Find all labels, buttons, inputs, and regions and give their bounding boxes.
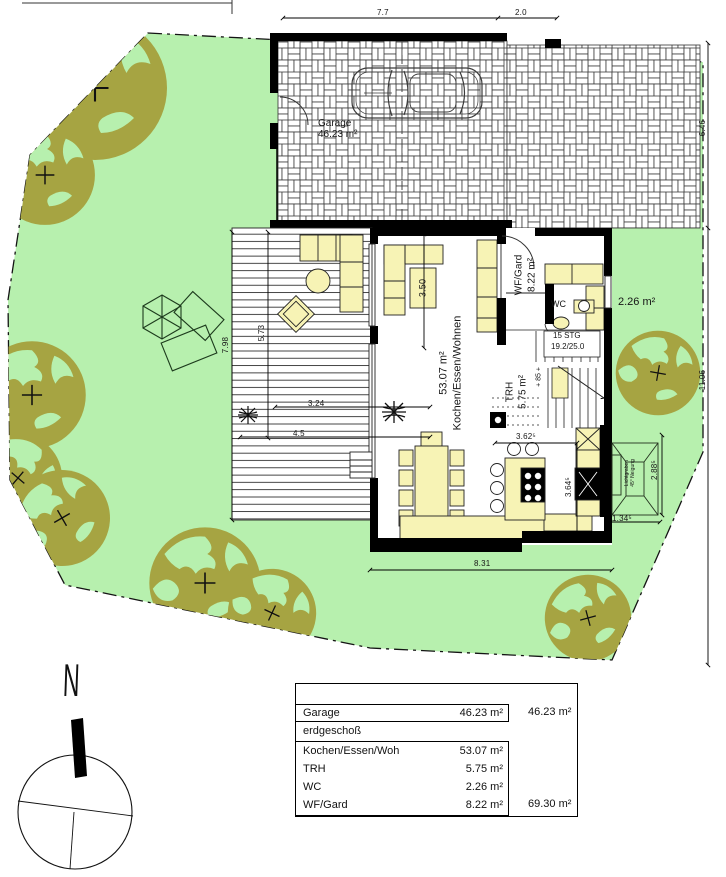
area-table: Garage 46.23 m² 46.23 m² erdgeschoß Koch… [295,683,578,817]
table-row: Kochen/Essen/Woh 53.07 m² [296,743,508,761]
row-label: WC [303,781,321,793]
dim-right-lower: 11.06 [698,370,708,390]
row-value: 53.07 m² [460,745,503,757]
house [350,228,612,552]
sink [579,301,590,312]
sideboard [477,240,497,332]
dim-terrace-height: 7.98 [221,337,231,353]
garage-row-value: 46.23 m² [460,707,503,719]
site-plan: Garage 46.23 m² 53.07 m² Kochen/Essen/Wo… [0,0,726,877]
stairs-count: 15 STG [553,331,581,341]
garage-total: 46.23 m² [528,706,571,718]
toilet [553,317,569,329]
floor-total: 69.30 m² [528,798,571,810]
dim-kitchen-height: 3.64⁵ [564,477,574,497]
compass [18,718,133,869]
kitchen-column [575,428,601,516]
trh-area: 5.75 m² [517,375,530,409]
dim-terrace-w2: 4.5 [293,429,305,439]
room-label-living: 53.07 m² Kochen/Essen/Wohnen [437,316,465,431]
row-value: 5.75 m² [466,763,503,775]
tree-icon [23,16,167,160]
gate-post [545,39,561,48]
trh-name: TRH [505,375,518,409]
row-label: WF/Gard [303,799,348,811]
dim-garage-width: 7.7 [377,8,389,18]
wc-area-label: 2.26 m² [618,296,655,310]
garage-area: 46.23 m² [318,129,357,142]
room-label-wf-gard: WF/Gard 8.22 m² [514,255,539,296]
dim-terrace-inner: 5.73 [257,325,267,341]
stove [521,468,545,502]
compass-needle [71,718,87,778]
row-value: 8.22 m² [466,799,503,811]
wf-area: 8.22 m² [526,255,539,296]
light-well-label: Lichtgraben 45° Neigung [624,459,637,487]
dim-canopy-height: 2.88⁵ [650,460,660,480]
row-value: 2.26 m² [466,781,503,793]
terrace-table [306,269,330,293]
table-row: WF/Gard 8.22 m² [296,797,508,815]
table-floor-rows: Kochen/Essen/Woh 53.07 m² TRH 5.75 m² WC… [295,741,509,816]
table-row: TRH 5.75 m² [296,761,508,779]
plant-icon [382,401,406,423]
row-label: TRH [303,763,326,775]
dim-gate-width: 2.0 [515,8,527,18]
compass-north-label: N [62,652,81,710]
row-label: Kochen/Essen/Woh [303,745,399,757]
dim-kitchen-width: 3.62⁵ [516,432,536,442]
dim-canopy-width: 1.34⁵ [612,514,632,524]
light-well-line2: 45° Neigung [630,459,636,487]
bay-window [350,452,372,478]
dim-right-upper: 6.46 [698,120,708,136]
neighbour-boundary [22,0,232,14]
section-label: erdgeschoß [303,725,361,739]
stairs-level-note: + 85 + [536,367,545,387]
dim-terrace-w1: 3.24 [308,399,324,409]
table-row-garage: Garage 46.23 m² [295,704,509,722]
stairs-ratio: 19.2/25.0 [551,342,584,352]
room-label-wc: WC [551,299,566,310]
living-name: Kochen/Essen/Wohnen [451,316,465,431]
table-row: WC 2.26 m² [296,779,508,797]
stair-newel [552,368,568,398]
dim-living-table: 3.50 [417,279,428,297]
dim-house-width: 8.31 [474,559,490,569]
plant-icon [238,406,258,424]
wf-name: WF/Gard [514,255,527,296]
living-area: 53.07 m² [437,316,451,431]
room-label-trh: TRH 5.75 m² [505,375,530,409]
garage-row-label: Garage [303,707,340,719]
